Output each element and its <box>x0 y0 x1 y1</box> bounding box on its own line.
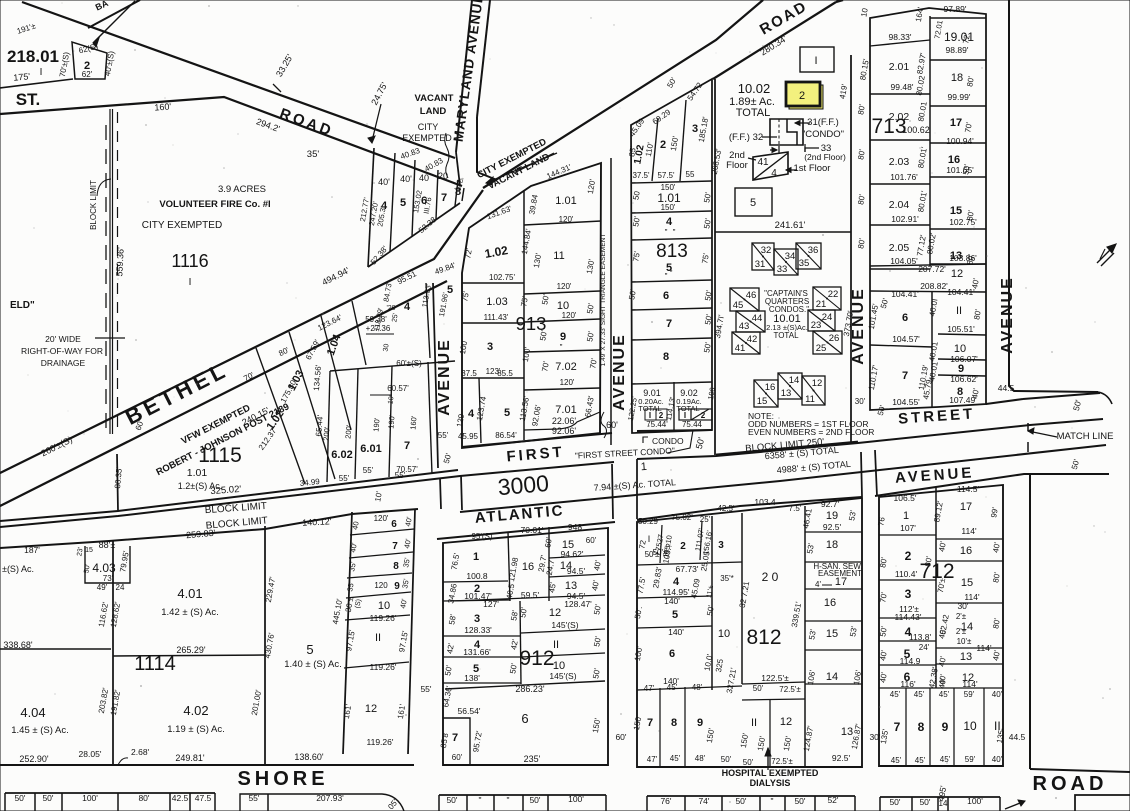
svg-text:42': 42' <box>445 642 456 654</box>
svg-text:104.41': 104.41' <box>891 289 919 299</box>
svg-text:50': 50' <box>42 793 53 803</box>
svg-text:22: 22 <box>828 289 839 300</box>
svg-text:50': 50' <box>705 604 716 616</box>
svg-text:II: II <box>375 632 381 644</box>
svg-text:2.05: 2.05 <box>889 242 910 254</box>
svg-text:33: 33 <box>777 264 788 275</box>
svg-text:50'#: 50'# <box>653 548 668 557</box>
svg-text:49': 49' <box>97 583 108 592</box>
svg-text:CITY EXEMPTED: CITY EXEMPTED <box>142 220 222 231</box>
svg-text:50': 50' <box>794 796 805 806</box>
svg-text:114.9: 114.9 <box>900 656 921 666</box>
svg-text:+27.36: +27.36 <box>366 324 391 333</box>
svg-text:6: 6 <box>669 648 675 660</box>
svg-text:23: 23 <box>811 320 822 331</box>
svg-text:37.5: 37.5 <box>461 369 477 378</box>
svg-text:265.29': 265.29' <box>176 645 206 655</box>
svg-text:114.5': 114.5' <box>957 484 980 494</box>
svg-text:80': 80' <box>856 148 867 160</box>
svg-text:72.5'±: 72.5'± <box>771 757 793 766</box>
svg-text:50': 50' <box>508 662 519 674</box>
svg-text:56.54': 56.54' <box>458 706 481 716</box>
svg-text:110.4': 110.4' <box>895 569 918 579</box>
svg-text:VACANT: VACANT <box>415 93 454 104</box>
svg-text:50': 50' <box>889 797 900 807</box>
svg-text:40': 40' <box>992 690 1003 699</box>
svg-text:106.62': 106.62' <box>950 374 978 384</box>
svg-text:40': 40' <box>991 541 1002 553</box>
svg-text:187': 187' <box>24 545 40 555</box>
svg-text:AVENUE: AVENUE <box>436 338 453 416</box>
svg-text:57.5': 57.5' <box>657 171 675 180</box>
svg-text:16: 16 <box>765 382 776 393</box>
svg-text:9: 9 <box>697 717 703 729</box>
svg-text:15: 15 <box>961 577 973 589</box>
svg-text:55': 55' <box>438 431 449 440</box>
svg-text:67.73': 67.73' <box>676 564 699 574</box>
svg-text:286.23': 286.23' <box>515 684 545 694</box>
svg-text:4.01: 4.01 <box>177 586 202 601</box>
svg-text:75': 75' <box>631 250 642 262</box>
svg-text:50': 50' <box>540 293 551 305</box>
svg-text:HOSPITAL EXEMPTED: HOSPITAL EXEMPTED <box>722 768 819 778</box>
svg-text:70': 70' <box>540 360 551 372</box>
svg-text:5: 5 <box>306 642 313 657</box>
svg-text:4.03: 4.03 <box>92 561 116 575</box>
svg-text:53': 53' <box>847 509 858 521</box>
svg-text:14: 14 <box>826 671 838 683</box>
svg-text:40': 40' <box>400 174 412 184</box>
svg-text:50': 50' <box>446 795 457 805</box>
svg-text:12: 12 <box>549 607 561 619</box>
svg-text:ST.: ST. <box>16 90 41 109</box>
svg-text:100.62: 100.62 <box>902 125 930 135</box>
svg-text:1.01: 1.01 <box>187 467 208 479</box>
svg-text:207.93': 207.93' <box>316 793 344 803</box>
svg-text:160': 160' <box>154 101 172 112</box>
svg-text:128.47': 128.47' <box>564 599 592 609</box>
svg-text:60': 60' <box>606 420 618 430</box>
svg-text:92.7': 92.7' <box>821 499 840 509</box>
svg-text:40: 40 <box>419 173 429 183</box>
svg-text:45': 45' <box>939 690 950 699</box>
svg-text:99': 99' <box>989 506 1000 518</box>
svg-text:12: 12 <box>780 716 792 728</box>
svg-text:100': 100' <box>82 793 98 803</box>
svg-text:60'±(S): 60'±(S) <box>396 359 422 368</box>
svg-text:50': 50' <box>702 217 713 229</box>
svg-text:30': 30' <box>869 732 880 742</box>
svg-text:9: 9 <box>394 581 400 592</box>
svg-text:TOTAL: TOTAL <box>736 107 770 119</box>
svg-text:50': 50' <box>702 341 713 353</box>
svg-text:3.9 ACRES: 3.9 ACRES <box>218 184 266 195</box>
svg-text:101.65': 101.65' <box>946 165 974 175</box>
svg-text:50.29: 50.29 <box>638 517 659 526</box>
svg-text:103.4: 103.4 <box>754 497 776 507</box>
svg-text:55': 55' <box>363 466 374 475</box>
svg-text:75': 75' <box>460 290 471 302</box>
svg-text:95'(S): 95'(S) <box>471 532 492 541</box>
svg-text:18: 18 <box>951 72 963 84</box>
svg-text:9: 9 <box>560 331 566 343</box>
svg-text:7: 7 <box>404 440 410 452</box>
svg-text:88'±: 88'± <box>99 540 116 550</box>
svg-text:16: 16 <box>824 597 836 609</box>
svg-text:50': 50' <box>743 758 754 767</box>
svg-text:120': 120' <box>559 215 574 224</box>
svg-text:40': 40' <box>937 655 948 667</box>
svg-text:40': 40' <box>590 579 601 591</box>
svg-text:Floor: Floor <box>726 160 748 171</box>
svg-text:18: 18 <box>826 539 838 551</box>
svg-text:207.72': 207.72' <box>918 264 946 274</box>
svg-text:BLOCK LIMIT: BLOCK LIMIT <box>89 180 98 230</box>
svg-text:70.01': 70.01' <box>521 525 544 535</box>
svg-text:±(S) Ac.: ±(S) Ac. <box>2 564 34 574</box>
svg-text:70.57': 70.57' <box>396 465 418 474</box>
svg-text:114.43': 114.43' <box>895 612 922 622</box>
svg-text:": " <box>506 795 509 805</box>
svg-text:2: 2 <box>659 411 664 420</box>
svg-text:60': 60' <box>586 536 597 545</box>
svg-text:50': 50' <box>631 215 642 227</box>
svg-text:45': 45' <box>914 690 925 699</box>
svg-text:AVENUE: AVENUE <box>999 276 1016 354</box>
svg-text:47': 47' <box>647 755 658 764</box>
svg-text:53': 53' <box>848 625 859 637</box>
svg-text:4: 4 <box>771 168 777 179</box>
svg-text:145'(S): 145'(S) <box>551 620 578 630</box>
svg-text:114': 114' <box>962 679 978 689</box>
svg-text:2.68': 2.68' <box>131 747 150 757</box>
svg-text:8: 8 <box>671 717 677 729</box>
svg-text:1.19 ± (S) Ac.: 1.19 ± (S) Ac. <box>167 724 225 735</box>
svg-text:(F.F.) 32: (F.F.) 32 <box>729 132 763 143</box>
svg-text:59': 59' <box>965 755 976 764</box>
svg-text:100': 100' <box>568 794 584 804</box>
svg-text:7.5': 7.5' <box>789 504 802 513</box>
svg-text:55: 55 <box>686 170 695 179</box>
svg-text:2: 2 <box>660 139 666 151</box>
svg-text:2.03: 2.03 <box>889 156 910 168</box>
svg-text:5: 5 <box>400 197 406 209</box>
svg-text:120: 120 <box>374 581 388 590</box>
svg-text:48': 48' <box>692 683 703 692</box>
svg-text:8: 8 <box>918 720 925 734</box>
svg-text:100': 100' <box>967 796 983 806</box>
svg-text:138': 138' <box>464 673 480 683</box>
svg-text:15: 15 <box>826 628 838 640</box>
svg-text:1115: 1115 <box>198 444 242 467</box>
svg-text:50': 50' <box>919 797 930 807</box>
svg-text:VOLUNTEER FIRE Co. #I: VOLUNTEER FIRE Co. #I <box>159 199 270 210</box>
svg-text:I: I <box>814 55 817 67</box>
svg-text:55': 55' <box>248 793 259 803</box>
svg-text:34: 34 <box>785 251 796 262</box>
svg-text:12: 12 <box>365 703 377 715</box>
svg-text:1: 1 <box>640 461 647 473</box>
svg-text:70': 70' <box>878 591 889 603</box>
svg-text:41: 41 <box>735 343 746 354</box>
svg-text:75': 75' <box>700 252 711 264</box>
svg-text:I: I <box>189 277 192 288</box>
svg-text:127': 127' <box>483 599 499 609</box>
svg-text:1.49' X 27.33' SIGHT TRIANGLE: 1.49' X 27.33' SIGHT TRIANGLE EASEMENT <box>600 234 607 367</box>
svg-text:10: 10 <box>718 628 730 640</box>
svg-text:99.99': 99.99' <box>948 92 971 102</box>
svg-text:42.5': 42.5' <box>717 504 735 513</box>
svg-text:7: 7 <box>392 541 398 552</box>
svg-text:50': 50' <box>591 667 602 679</box>
svg-text:": " <box>665 228 668 237</box>
svg-text:114': 114' <box>976 643 992 653</box>
svg-text:CITY: CITY <box>418 122 439 132</box>
svg-text:6: 6 <box>663 290 669 302</box>
svg-text:40': 40' <box>937 540 948 552</box>
svg-text:75': 75' <box>519 295 530 307</box>
svg-text:80': 80' <box>856 193 867 205</box>
svg-text:80': 80' <box>972 308 983 320</box>
svg-text:3000: 3000 <box>497 470 550 500</box>
svg-text:24: 24 <box>116 583 125 592</box>
svg-text:AVENUE: AVENUE <box>611 333 628 411</box>
svg-text:RIGHT-OF-WAY FOR: RIGHT-OF-WAY FOR <box>21 346 103 356</box>
svg-text:44: 44 <box>752 313 763 324</box>
svg-text:AVENUE: AVENUE <box>850 287 867 365</box>
svg-text:13: 13 <box>960 651 972 663</box>
svg-text:40': 40' <box>991 649 1002 661</box>
svg-text:12: 12 <box>812 378 823 389</box>
svg-text:37.5': 37.5' <box>632 171 650 180</box>
svg-text:55': 55' <box>420 684 431 694</box>
svg-text:80': 80' <box>856 103 867 115</box>
svg-text:70': 70' <box>963 121 974 133</box>
svg-text:44.5: 44.5 <box>1009 732 1026 742</box>
svg-text:50': 50' <box>721 755 732 764</box>
svg-text:325.02': 325.02' <box>210 484 242 497</box>
svg-text:113.8': 113.8' <box>909 632 932 642</box>
svg-text:100.94': 100.94' <box>946 136 974 146</box>
svg-text:47.5: 47.5 <box>195 793 212 803</box>
svg-text:40': 40' <box>878 671 889 683</box>
svg-text:30': 30' <box>855 397 866 406</box>
svg-text:6: 6 <box>902 312 908 324</box>
svg-text:40': 40' <box>878 649 889 661</box>
svg-text:120': 120' <box>560 378 575 387</box>
svg-text:812: 812 <box>746 626 781 649</box>
svg-text:74': 74' <box>698 796 709 806</box>
svg-text:105.51': 105.51' <box>947 324 975 334</box>
svg-text:85.5: 85.5 <box>497 369 513 378</box>
svg-text:102.91': 102.91' <box>891 214 919 224</box>
svg-text:55': 55' <box>339 474 350 483</box>
svg-text:45': 45' <box>891 756 902 765</box>
svg-text:20: 20 <box>438 171 448 181</box>
svg-text:102.75': 102.75' <box>949 217 977 227</box>
svg-text:35: 35 <box>799 258 810 269</box>
svg-text:1: 1 <box>903 510 909 522</box>
svg-text:80': 80' <box>856 237 867 249</box>
svg-text:36: 36 <box>808 245 819 256</box>
svg-text:30': 30' <box>957 601 968 611</box>
svg-text:TOTAL: TOTAL <box>773 331 799 340</box>
svg-text:104.57': 104.57' <box>892 334 920 344</box>
svg-text:241.61': 241.61' <box>775 220 806 231</box>
svg-text:50': 50' <box>878 625 889 637</box>
svg-text:24': 24' <box>919 643 930 652</box>
svg-text:50': 50' <box>538 329 549 341</box>
svg-text:80.35': 80.35' <box>113 466 124 489</box>
svg-text:122.5'±: 122.5'± <box>761 673 789 683</box>
svg-text:7.01: 7.01 <box>555 404 576 416</box>
svg-text:5: 5 <box>672 609 678 621</box>
svg-text:1.03: 1.03 <box>486 296 507 308</box>
svg-text:10: 10 <box>378 600 390 612</box>
svg-text:72': 72' <box>961 32 972 44</box>
svg-text:72': 72' <box>463 247 474 259</box>
svg-text:8: 8 <box>663 351 669 363</box>
svg-text:50': 50' <box>529 795 540 805</box>
svg-text:32: 32 <box>761 245 772 256</box>
svg-text:9: 9 <box>942 720 949 734</box>
svg-text:ELD": ELD" <box>10 300 35 311</box>
svg-text:DIALYSIS: DIALYSIS <box>750 778 791 788</box>
svg-text:52': 52' <box>827 795 838 805</box>
svg-text:97.89': 97.89' <box>944 4 967 14</box>
svg-text:98.33': 98.33' <box>889 32 912 42</box>
svg-text:2'±: 2'± <box>956 612 967 621</box>
svg-text:II: II <box>751 717 757 729</box>
svg-text:": " <box>560 343 563 352</box>
svg-text:50': 50' <box>703 313 714 325</box>
svg-text:208.82': 208.82' <box>920 281 948 291</box>
svg-text:140.12': 140.12' <box>302 516 332 528</box>
svg-text:20' WIDE: 20' WIDE <box>45 334 81 344</box>
svg-text:15: 15 <box>757 396 768 407</box>
svg-text:7: 7 <box>666 318 672 330</box>
svg-text:II: II <box>956 305 962 317</box>
svg-text:7: 7 <box>902 370 908 382</box>
svg-text:": " <box>673 228 676 237</box>
svg-text:218.01: 218.01 <box>7 47 59 66</box>
svg-text:102.75': 102.75' <box>489 273 515 282</box>
svg-text:4: 4 <box>666 216 673 228</box>
svg-text:60.57': 60.57' <box>387 384 409 393</box>
svg-text:4': 4' <box>815 580 821 589</box>
svg-text:50': 50' <box>735 796 746 806</box>
svg-text:31: 31 <box>755 259 766 270</box>
svg-text:99.48': 99.48' <box>891 82 914 92</box>
svg-text:114': 114' <box>961 526 977 536</box>
svg-text:45': 45' <box>547 581 558 593</box>
svg-text:190': 190' <box>386 414 396 429</box>
svg-text:60': 60' <box>543 536 554 548</box>
svg-text:12: 12 <box>951 268 963 280</box>
svg-text:160': 160' <box>408 415 418 430</box>
svg-text:2.01: 2.01 <box>889 61 910 73</box>
svg-text:40': 40' <box>937 677 948 689</box>
svg-text:7: 7 <box>647 717 653 729</box>
svg-text:40': 40' <box>378 177 390 187</box>
svg-text:190': 190' <box>371 417 381 432</box>
svg-text:50': 50' <box>702 191 713 203</box>
svg-text:13: 13 <box>781 388 792 399</box>
svg-text:17: 17 <box>950 117 962 129</box>
svg-text:6: 6 <box>391 519 397 530</box>
svg-text:100.8: 100.8 <box>466 571 488 581</box>
svg-text:813: 813 <box>656 241 688 262</box>
svg-text:50': 50' <box>703 289 714 301</box>
svg-text:72.5'±: 72.5'± <box>779 685 801 694</box>
svg-text:119.26': 119.26' <box>370 662 397 672</box>
svg-text:25': 25' <box>700 515 711 524</box>
svg-text:92.5': 92.5' <box>823 522 842 532</box>
svg-text:175': 175' <box>13 71 31 82</box>
svg-text:119.26': 119.26' <box>367 737 394 747</box>
svg-text:1116: 1116 <box>171 251 208 271</box>
svg-text:60': 60' <box>452 753 463 762</box>
svg-text:2 0: 2 0 <box>762 570 779 584</box>
svg-text:80': 80' <box>965 75 976 87</box>
svg-text:73': 73' <box>103 574 114 583</box>
svg-text:50': 50' <box>518 606 529 618</box>
svg-text:252.90': 252.90' <box>19 754 49 764</box>
svg-text:45': 45' <box>670 754 681 763</box>
svg-text:CONDO: CONDO <box>652 436 684 446</box>
svg-text:MATCH LINE: MATCH LINE <box>1057 431 1114 442</box>
svg-text:45': 45' <box>890 690 901 699</box>
svg-text:42': 42' <box>509 638 520 650</box>
svg-text:2.02: 2.02 <box>889 111 910 123</box>
svg-text:11: 11 <box>805 394 815 405</box>
svg-text:17: 17 <box>960 501 972 513</box>
svg-text:SHORE: SHORE <box>237 768 328 790</box>
svg-text:1st Floor: 1st Floor <box>794 163 831 174</box>
svg-text:131.66': 131.66' <box>463 647 491 657</box>
svg-text:42: 42 <box>747 334 758 345</box>
svg-text:4: 4 <box>404 301 411 313</box>
svg-text:'20: '20 <box>386 305 395 312</box>
svg-text:53': 53' <box>805 542 816 554</box>
svg-text:249.81': 249.81' <box>175 753 205 763</box>
svg-text:19: 19 <box>826 510 838 522</box>
svg-text:104.55': 104.55' <box>892 397 920 407</box>
svg-text:104.05': 104.05' <box>890 256 918 266</box>
svg-text:145'(S): 145'(S) <box>549 671 576 681</box>
svg-text:43: 43 <box>739 321 750 332</box>
svg-text:76': 76' <box>660 796 671 806</box>
svg-text:50': 50' <box>585 330 596 342</box>
svg-text:": " <box>665 272 668 281</box>
svg-text:16: 16 <box>960 545 972 557</box>
svg-text:119.26': 119.26' <box>370 613 397 623</box>
svg-text:559.36': 559.36' <box>114 247 126 277</box>
svg-text:42.5: 42.5 <box>172 793 189 803</box>
svg-text:60': 60' <box>615 732 626 742</box>
svg-text:200': 200' <box>343 424 353 439</box>
svg-text:2: 2 <box>680 541 686 552</box>
svg-text:103.86': 103.86' <box>949 253 977 263</box>
svg-text:140': 140' <box>664 596 680 606</box>
svg-text:3: 3 <box>474 613 480 625</box>
svg-text:92.06': 92.06' <box>552 426 577 436</box>
svg-text:2'±: 2'± <box>956 627 967 636</box>
svg-text:80': 80' <box>878 556 889 568</box>
svg-text:200': 200' <box>321 426 331 441</box>
svg-text:35': 35' <box>307 149 320 160</box>
svg-text:50': 50' <box>753 684 764 693</box>
